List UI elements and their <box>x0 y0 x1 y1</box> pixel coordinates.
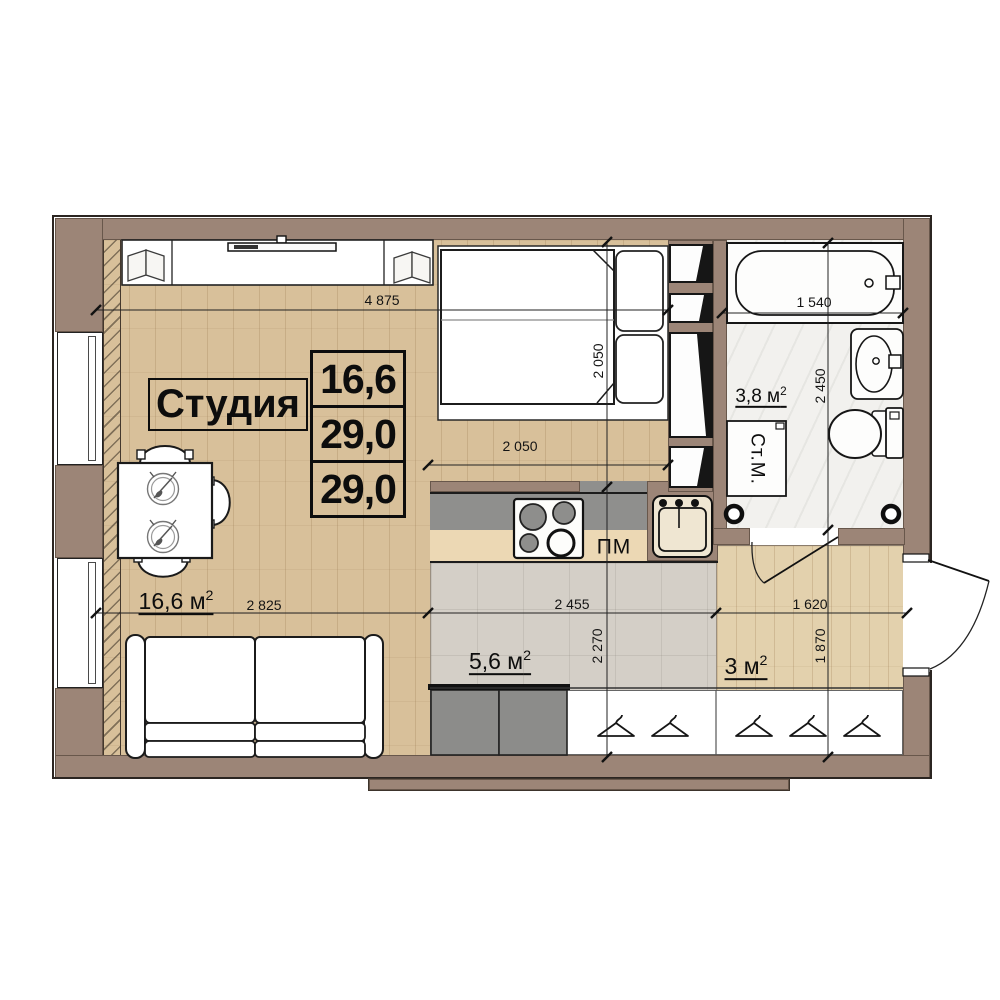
wardrobe-units <box>428 684 903 755</box>
kitchen-area-label: 5,6 м2 <box>469 649 531 673</box>
tv-console <box>122 236 433 285</box>
shelving-niches <box>669 244 713 488</box>
washing-machine-label: Ст.М. <box>748 433 767 485</box>
toilet <box>829 408 903 458</box>
double-bed <box>438 246 668 420</box>
dining-set <box>118 446 230 577</box>
hanger-icon <box>652 715 688 736</box>
dim-bed-length: 2 050 <box>502 439 537 453</box>
door-stop-marker <box>883 506 899 522</box>
pillow <box>616 251 663 331</box>
entry-door <box>903 554 989 676</box>
pillow <box>616 335 663 403</box>
area-summary-row: 16,6 <box>313 353 403 405</box>
cabinet <box>499 690 567 755</box>
cooktop <box>514 499 583 558</box>
dim-bed-width: 2 050 <box>591 343 605 378</box>
dishwasher-label: ПМ <box>597 537 632 558</box>
tv-mount <box>277 236 286 243</box>
hanger-icon <box>790 715 826 736</box>
area-summary-table: 16,6 29,0 29,0 <box>310 350 406 518</box>
hanger-icon <box>844 715 880 736</box>
hanger-icon <box>736 715 772 736</box>
area-summary-row: 29,0 <box>313 460 403 515</box>
dim-living-width: 2 825 <box>246 598 281 612</box>
chair <box>211 480 230 525</box>
floor-plan-page: { "title": "Студия", "area_table": { "ro… <box>0 0 1000 1000</box>
dim-bathroom-depth: 2 450 <box>813 368 827 403</box>
bathroom-door <box>752 537 838 583</box>
chair <box>140 446 190 464</box>
cabinet <box>431 690 499 755</box>
dim-studio-width: 4 875 <box>364 293 399 307</box>
linework-layer <box>0 0 1000 1000</box>
door-stop-marker <box>726 506 742 522</box>
dim-kitchen-width: 2 455 <box>554 597 589 611</box>
dim-hall-width: 1 620 <box>792 597 827 611</box>
kitchen-sink <box>653 496 712 557</box>
dim-bath-length: 1 540 <box>796 295 831 309</box>
washbasin <box>851 329 903 399</box>
chair <box>138 558 188 577</box>
dim-hall-depth: 1 870 <box>813 628 827 663</box>
bathtub <box>727 243 903 323</box>
hanger-icon <box>598 715 634 736</box>
area-summary-row: 29,0 <box>313 405 403 460</box>
plan-title: Студия <box>148 378 308 431</box>
hallway-area-label: 3 м2 <box>725 654 768 678</box>
dim-kitchen-depth: 2 270 <box>590 628 604 663</box>
sofa <box>126 635 383 758</box>
living-area-label: 16,6 м2 <box>139 589 214 613</box>
bathroom-area-label: 3,8 м2 <box>735 386 786 406</box>
